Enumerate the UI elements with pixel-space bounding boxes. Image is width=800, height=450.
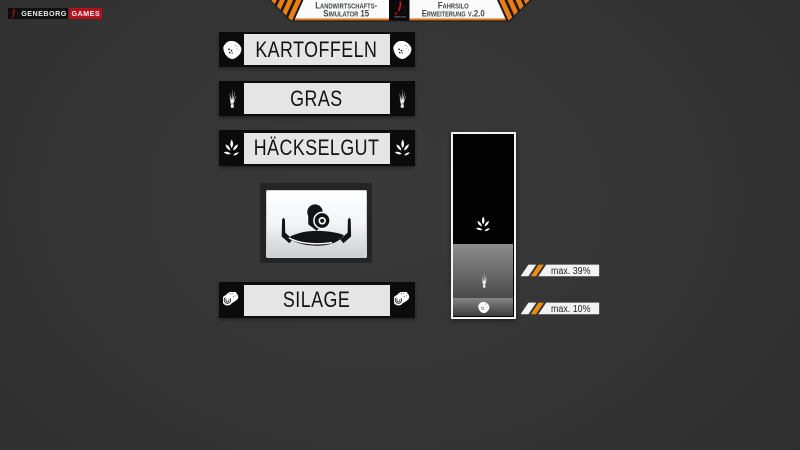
svg-text:Erweiterung v.2.0: Erweiterung v.2.0	[422, 9, 485, 20]
svg-text:Simulator 15: Simulator 15	[323, 9, 370, 20]
svg-text:max. 10%: max. 10%	[551, 304, 591, 315]
svg-text:max. 39%: max. 39%	[551, 266, 591, 277]
